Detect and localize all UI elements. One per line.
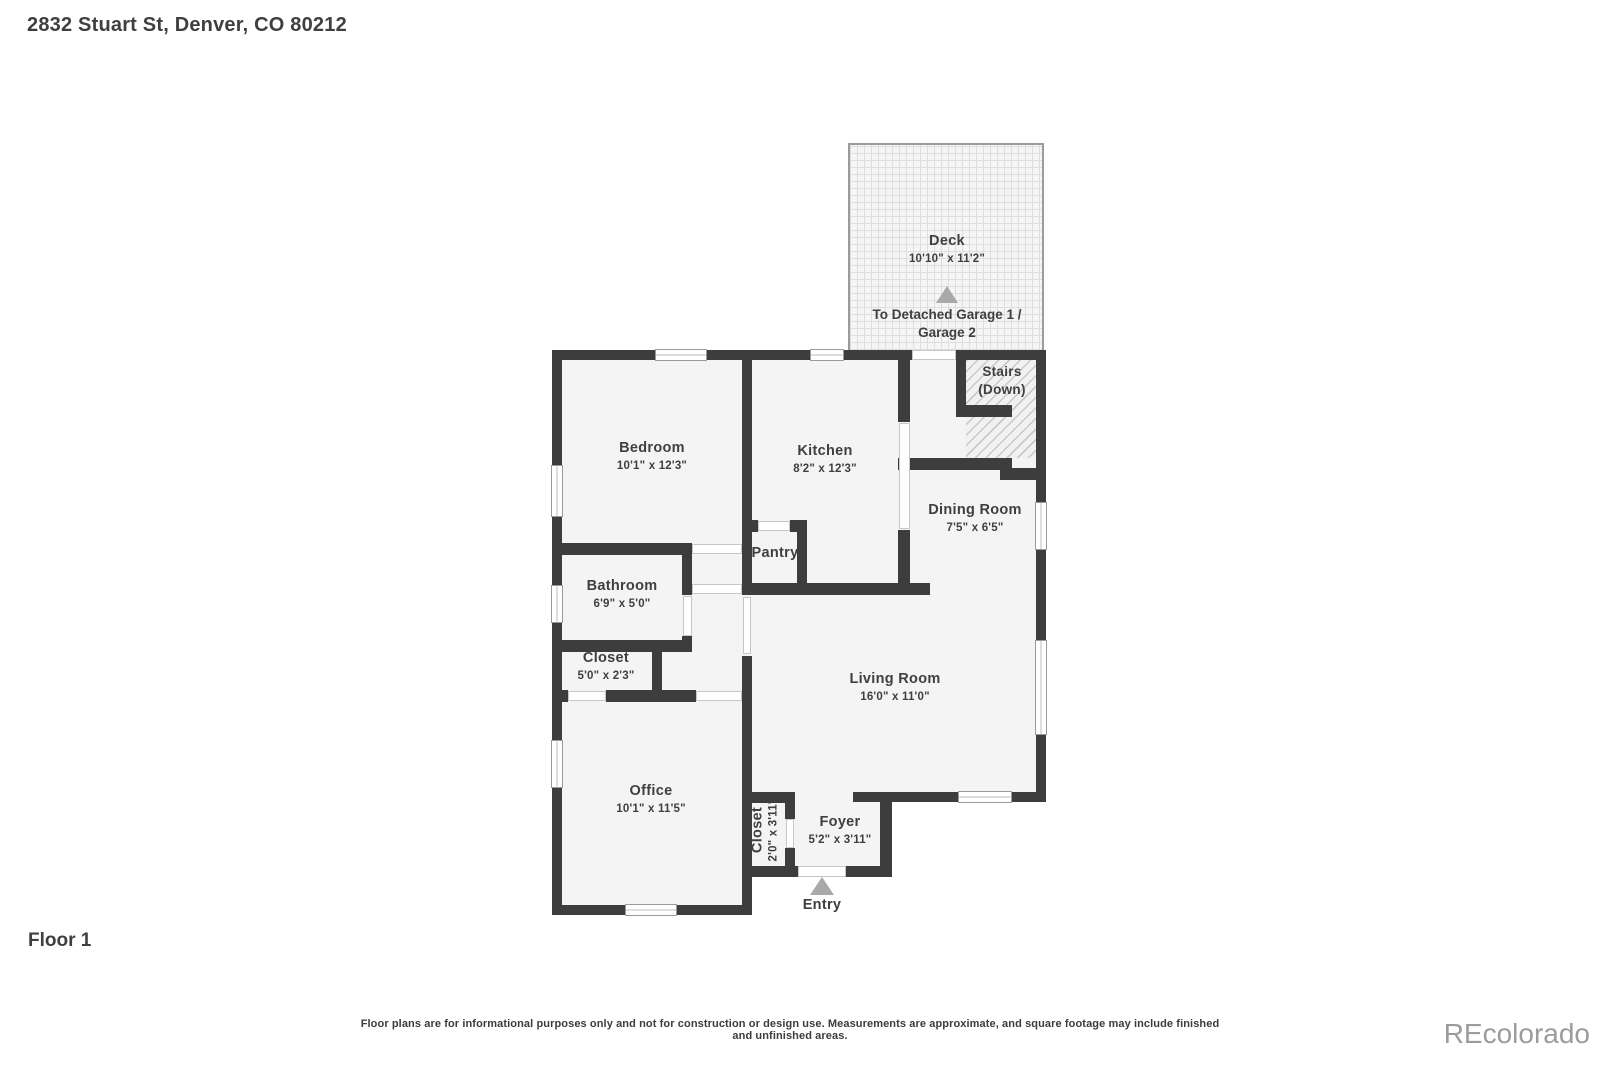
room-name: Dining Room	[928, 503, 1022, 519]
wall	[1000, 468, 1046, 480]
wall	[898, 350, 910, 422]
wall	[880, 792, 892, 877]
room-dims: 7'5" x 6'5"	[928, 522, 1022, 535]
room-label-kitchen: Kitchen 8'2" x 12'3"	[793, 444, 857, 476]
floorplan-page: 2832 Stuart St, Denver, CO 80212 Deck 10…	[0, 0, 1600, 1066]
room-name: Foyer	[809, 815, 872, 831]
room-dims: 6'9" x 5'0"	[587, 598, 658, 611]
room-dims: 2'0" x 3'11"	[768, 799, 780, 862]
room-dims: 16'0" x 11'0"	[849, 691, 940, 704]
room-label-closet-hall: Closet 5'0" x 2'3"	[578, 651, 635, 683]
door-opening	[692, 544, 742, 554]
room-dims: 5'0" x 2'3"	[578, 670, 635, 683]
room-name: Deck	[909, 234, 985, 250]
room-name: Entry	[803, 898, 842, 914]
wall	[552, 350, 1046, 360]
room-name: Closet	[578, 651, 635, 667]
door-opening	[786, 819, 794, 848]
room-dims: 10'1" x 12'3"	[617, 460, 687, 473]
wall	[898, 458, 1010, 470]
wall	[606, 690, 696, 702]
wall	[846, 866, 892, 877]
window	[551, 585, 563, 623]
room-name: Closet	[750, 799, 765, 862]
room-sub: (Down)	[978, 383, 1026, 398]
room-dims: 10'10" x 11'2"	[909, 253, 985, 266]
door-opening	[899, 423, 910, 529]
wall	[682, 543, 692, 595]
wall	[956, 405, 1012, 417]
room-name: Pantry	[752, 546, 799, 562]
door-opening	[692, 584, 742, 594]
room-name: Living Room	[849, 672, 940, 688]
room-label-deck: Deck 10'10" x 11'2"	[909, 234, 985, 266]
room-label-dining-room: Dining Room 7'5" x 6'5"	[928, 503, 1022, 535]
window	[551, 465, 563, 517]
entry-triangle-icon	[810, 877, 834, 895]
door-opening	[683, 596, 692, 636]
room-name: Stairs	[978, 365, 1026, 380]
door-opening	[743, 597, 751, 654]
room-label-stairs: Stairs (Down)	[978, 365, 1026, 398]
window	[1035, 502, 1047, 550]
room-dims: 5'2" x 3'11"	[809, 834, 872, 847]
room-label-bathroom: Bathroom 6'9" x 5'0"	[587, 579, 658, 611]
room-dims: 10'1" x 11'5"	[616, 803, 686, 816]
wall	[552, 690, 568, 702]
wall	[552, 543, 692, 555]
room-label-closet-entry: Closet 2'0" x 3'11"	[750, 799, 779, 862]
entry-label: Entry	[803, 898, 842, 914]
wall	[898, 530, 910, 595]
door-opening	[696, 691, 742, 701]
room-label-living-room: Living Room 16'0" x 11'0"	[849, 672, 940, 704]
disclaimer-text: Floor plans are for informational purpos…	[350, 1018, 1230, 1042]
room-name: Bedroom	[617, 441, 687, 457]
room-name: Kitchen	[793, 444, 857, 460]
door-opening	[758, 521, 790, 531]
room-label-bedroom: Bedroom 10'1" x 12'3"	[617, 441, 687, 473]
room-dims: 8'2" x 12'3"	[793, 463, 857, 476]
window	[810, 349, 844, 361]
door-opening	[912, 350, 956, 360]
floorplan-geometry	[0, 0, 1600, 1066]
garage-access-note: To Detached Garage 1 / Garage 2	[872, 306, 1021, 342]
garage-note-line2: Garage 2	[872, 324, 1021, 342]
room-name: Bathroom	[587, 579, 658, 595]
floor-label: Floor 1	[28, 930, 91, 952]
room-name: Office	[616, 784, 686, 800]
door-opening	[798, 866, 846, 877]
window	[1035, 640, 1047, 735]
wall	[742, 866, 798, 877]
deck-access-triangle-icon	[936, 286, 958, 303]
recolorado-watermark: REcolorado	[1444, 1018, 1590, 1050]
garage-note-line1: To Detached Garage 1 /	[872, 306, 1021, 324]
room-label-foyer: Foyer 5'2" x 3'11"	[809, 815, 872, 847]
wall	[742, 350, 752, 595]
wall	[552, 350, 562, 915]
wall	[785, 792, 795, 819]
room-label-office: Office 10'1" x 11'5"	[616, 784, 686, 816]
window	[551, 740, 563, 788]
wall	[956, 360, 966, 408]
window	[655, 349, 707, 361]
window	[958, 791, 1012, 803]
door-opening	[568, 691, 606, 701]
wall	[742, 520, 758, 532]
window	[625, 904, 677, 916]
room-label-pantry: Pantry	[752, 546, 799, 562]
